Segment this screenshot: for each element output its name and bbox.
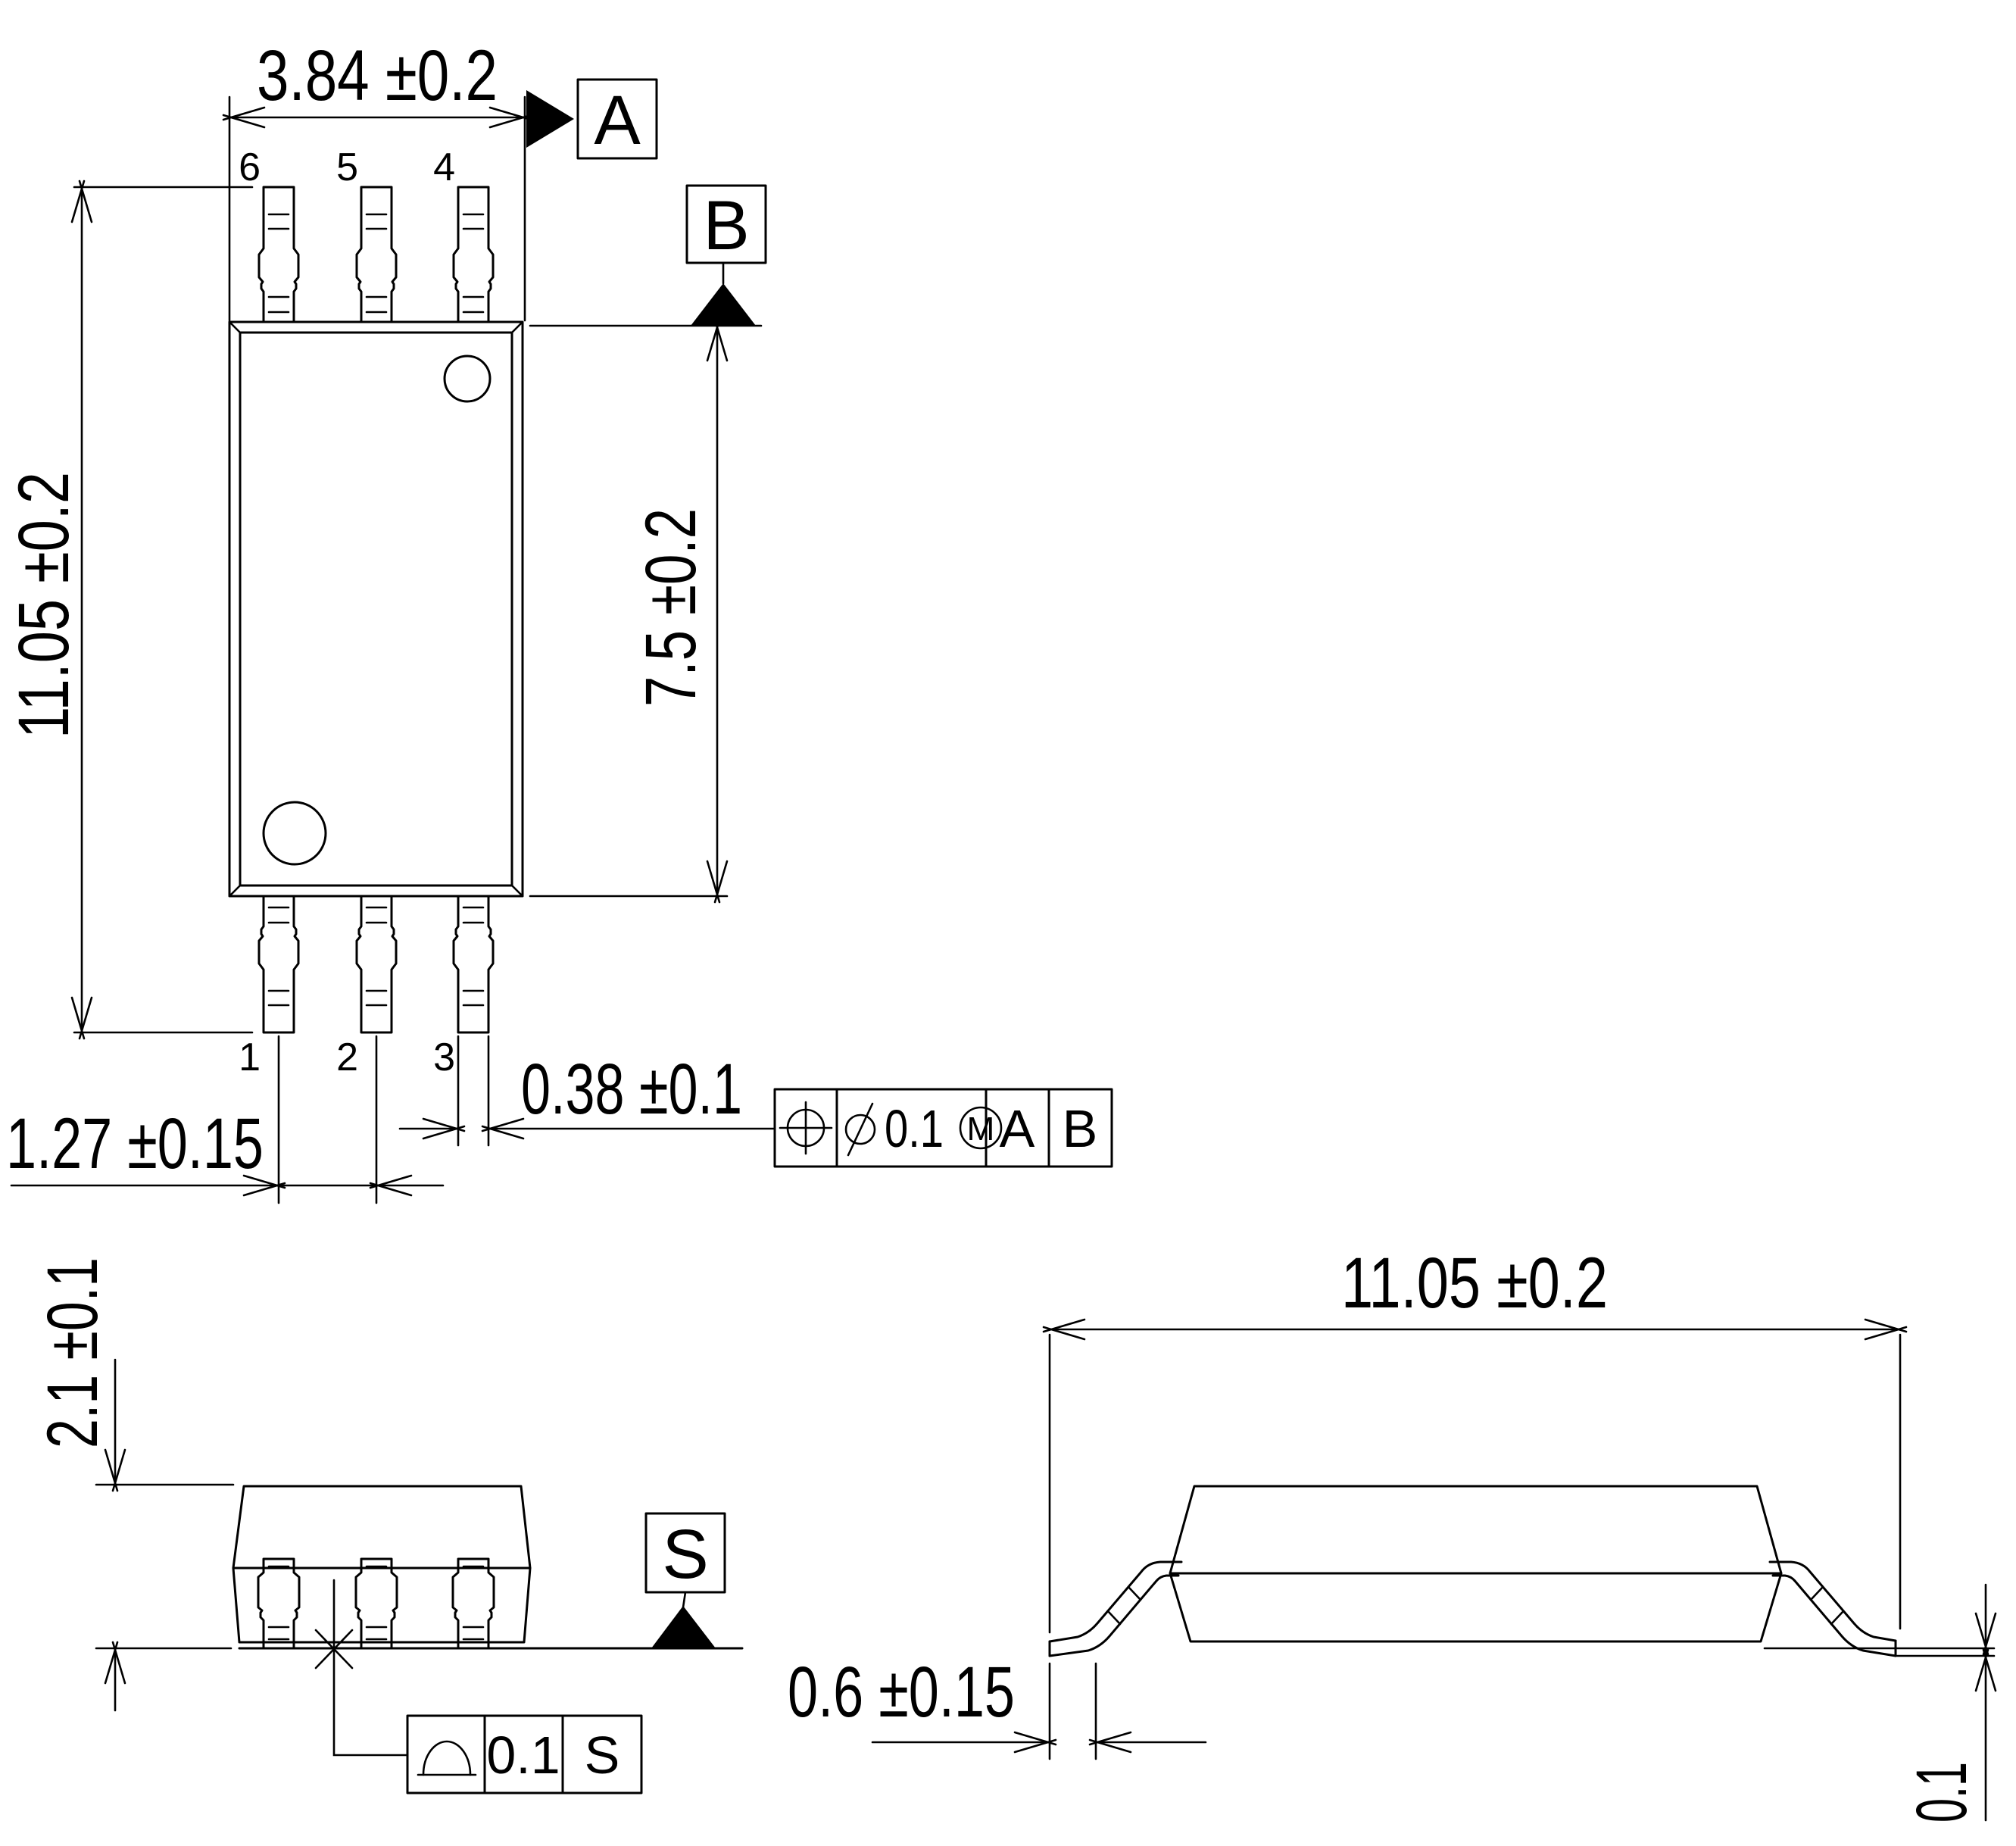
pin-number-1: 1 xyxy=(239,1035,261,1079)
pin-number-3: 3 xyxy=(433,1035,455,1079)
dim-lead-width-label: 0.38 ±0.1 xyxy=(521,1049,742,1129)
dim-standoff-label: 0.1 xyxy=(1902,1762,1982,1823)
drawing-sheet: 6 5 4 1 2 3 3.84 ±0.2 A 11.05 ±0.2 xyxy=(0,0,2016,1846)
dim-lead-pitch-label: 1.27 ±0.15 xyxy=(6,1104,264,1184)
dim-height-label: 2.1 ±0.1 xyxy=(33,1257,113,1448)
dim-total-length-label: 11.05 ±0.2 xyxy=(4,472,84,739)
dim-foot-length-label: 0.6 ±0.15 xyxy=(788,1652,1015,1732)
dim-body-length-label: 7.5 ±0.2 xyxy=(631,508,711,707)
seating-datum-label: S xyxy=(585,1726,620,1785)
package-outline-drawing: 6 5 4 1 2 3 3.84 ±0.2 A 11.05 ±0.2 xyxy=(0,0,2016,1846)
seating-tolerance-label: 0.1 xyxy=(486,1726,560,1785)
mmc-modifier-label: M xyxy=(967,1110,995,1148)
fcf-datum-b-label: B xyxy=(1063,1099,1098,1158)
pin-number-5: 5 xyxy=(336,145,358,189)
fcf-datum-a-label: A xyxy=(1000,1099,1035,1158)
pin-number-6: 6 xyxy=(239,145,261,189)
fcf-tolerance-label: 0.1 xyxy=(885,1099,944,1158)
datum-s-label: S xyxy=(662,1516,708,1593)
pin-number-4: 4 xyxy=(433,145,455,189)
datum-a-label: A xyxy=(594,82,641,159)
dim-body-width-label: 3.84 ±0.2 xyxy=(257,36,498,116)
pin-number-2: 2 xyxy=(336,1035,358,1079)
dim-side-total-length-label: 11.05 ±0.2 xyxy=(1341,1243,1608,1323)
datum-b-label: B xyxy=(703,187,749,264)
